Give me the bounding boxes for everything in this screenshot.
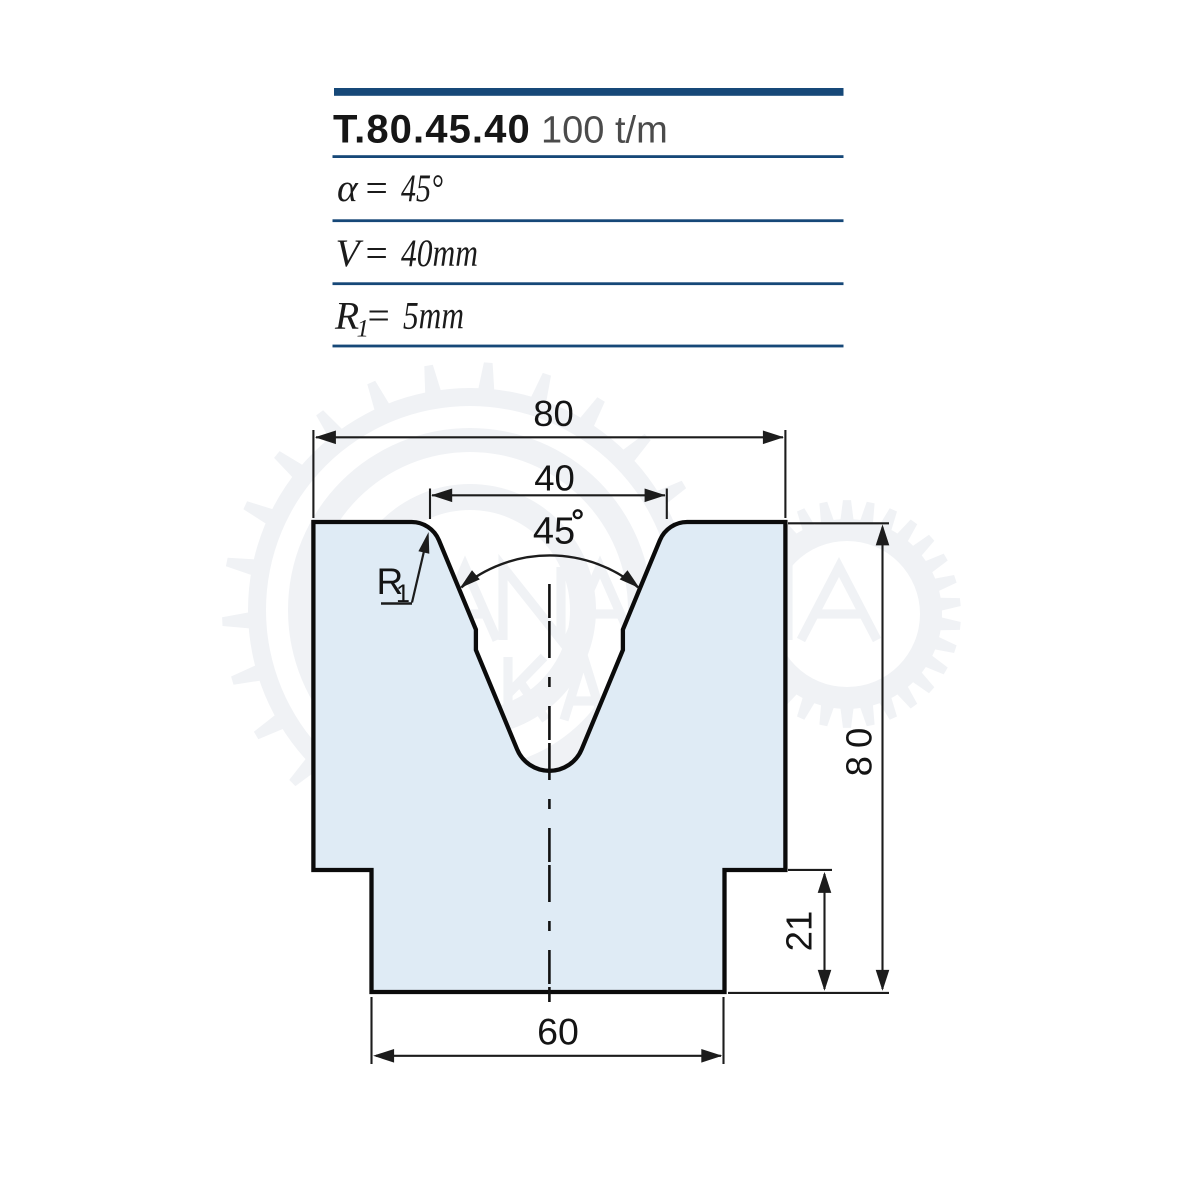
svg-text:1: 1 (396, 580, 410, 608)
svg-text:80: 80 (839, 720, 880, 777)
svg-text:=: = (365, 294, 392, 338)
svg-text:45: 45 (533, 511, 575, 553)
svg-text:60: 60 (537, 1011, 579, 1053)
svg-text:80: 80 (533, 393, 574, 434)
svg-text:40mm: 40mm (401, 231, 478, 275)
svg-text:40: 40 (534, 458, 575, 499)
svg-text:=: = (363, 231, 390, 275)
svg-text:=: = (363, 166, 390, 210)
svg-text:V: V (336, 231, 364, 275)
svg-text:100 t/m: 100 t/m (541, 110, 668, 152)
svg-text:α: α (337, 166, 359, 210)
svg-text:T.80.45.40: T.80.45.40 (333, 108, 531, 152)
svg-text:45°: 45° (401, 166, 443, 210)
svg-text:5mm: 5mm (403, 294, 464, 338)
svg-text:R: R (334, 294, 359, 338)
svg-text:21: 21 (779, 911, 820, 952)
